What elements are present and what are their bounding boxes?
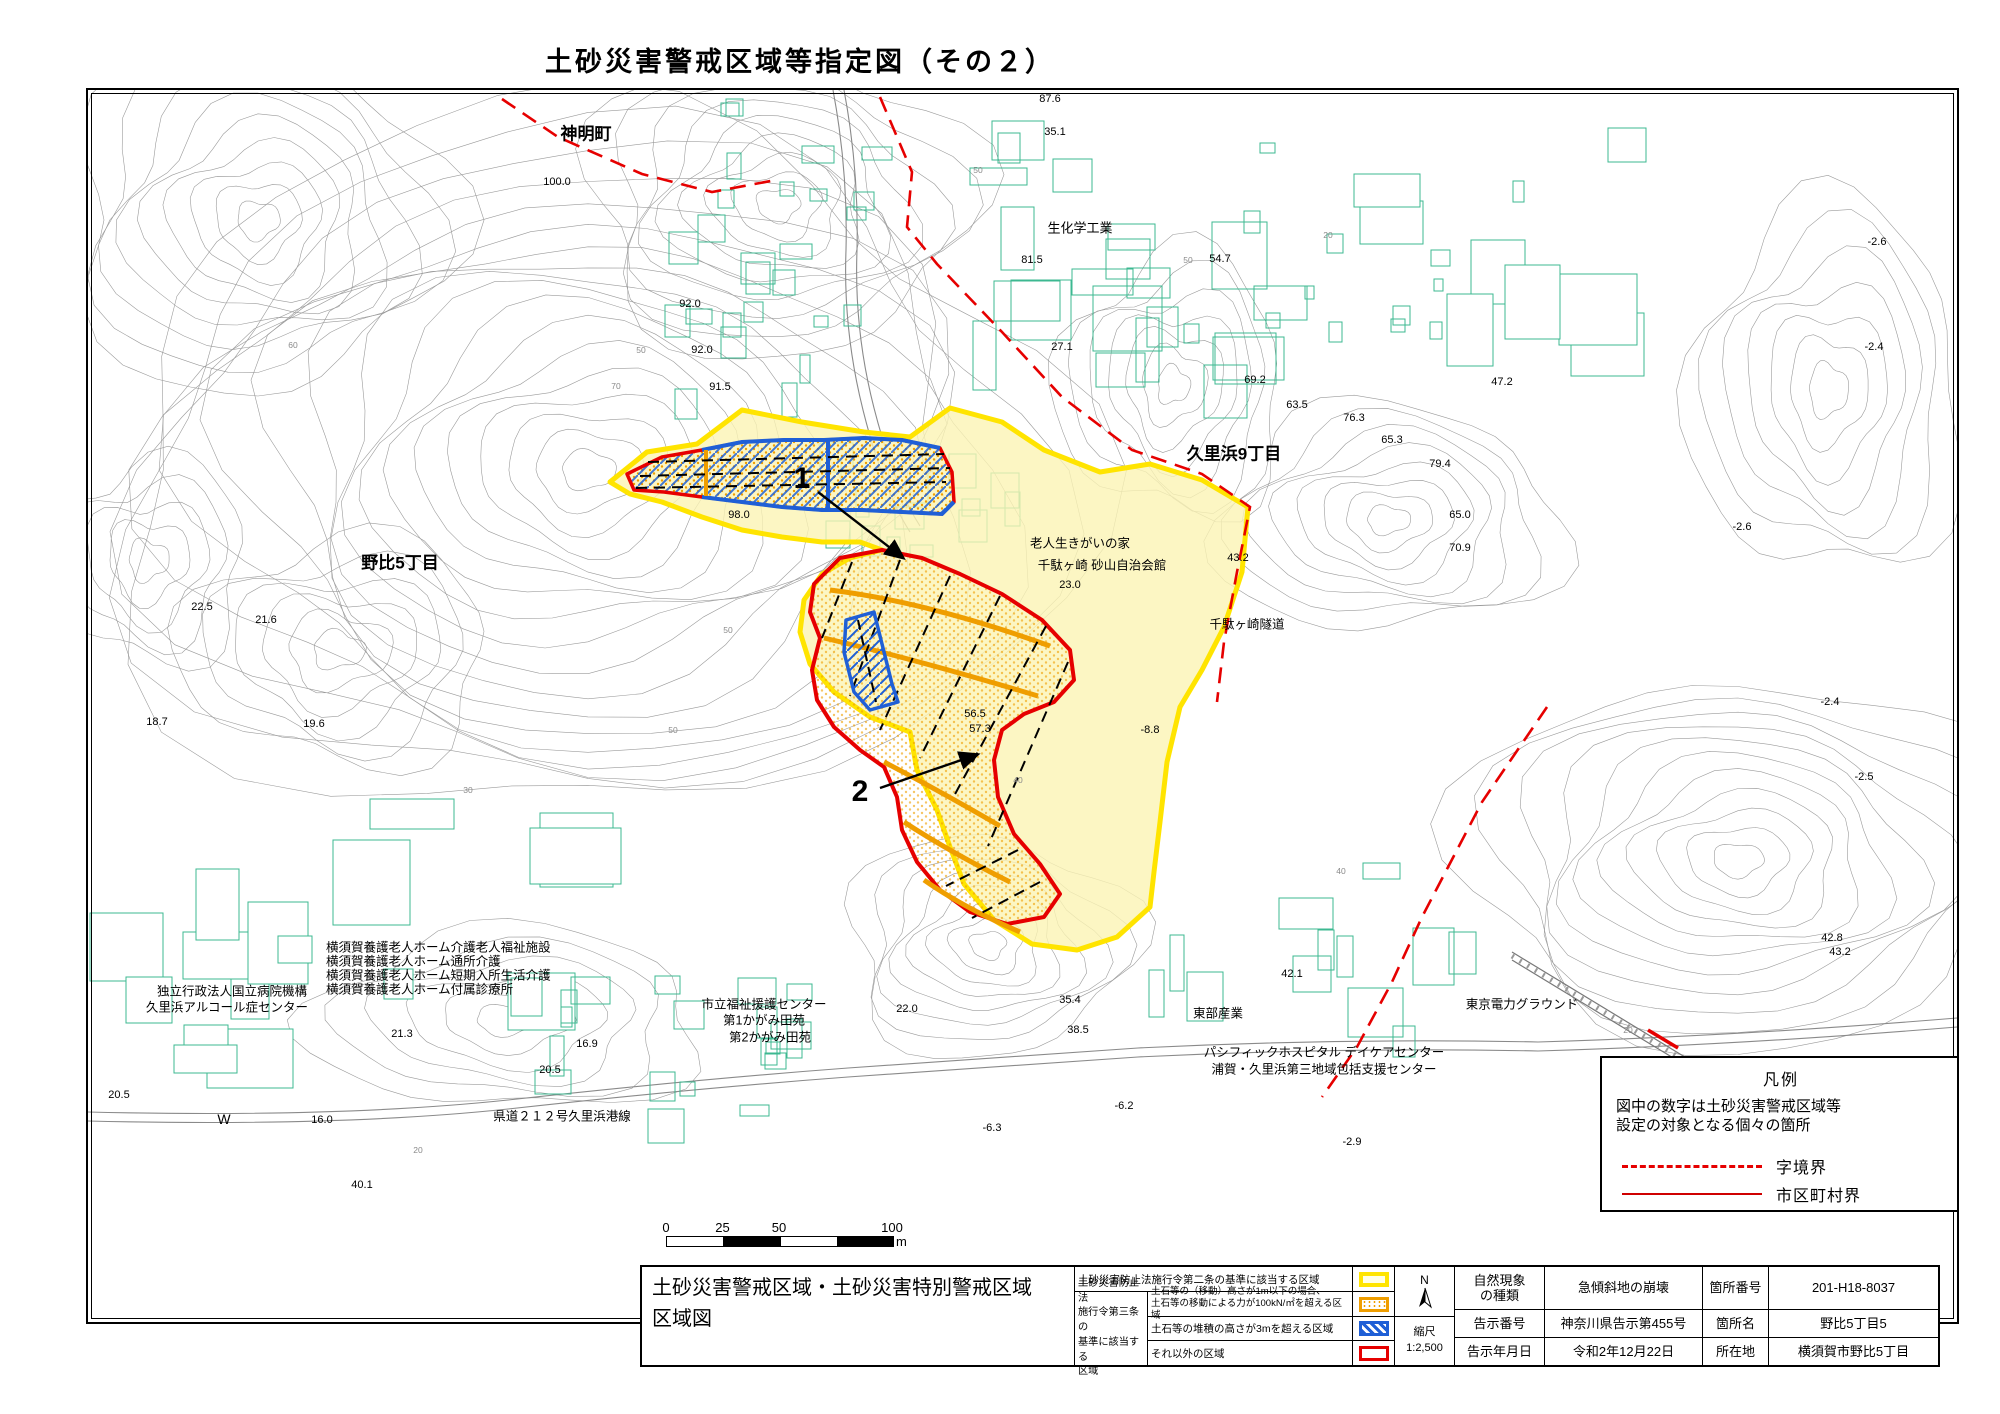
legend-item-municipal-boundary: 市区町村界 [1622,1182,1861,1206]
spot-elevation: 47.2 [1491,376,1512,388]
spot-elevation: 19.6 [303,718,324,730]
legend-item-aza-boundary: 字境界 [1622,1154,1827,1178]
area-label: W [217,1111,230,1127]
info-label: 所在地 [1703,1338,1769,1365]
info-value: 令和2年12月22日 [1545,1338,1703,1365]
contour-label: 20 [1623,1025,1632,1035]
spot-elevation: 27.1 [1051,341,1072,353]
map-legend: 凡例 図中の数字は土砂災害警戒区域等 設定の対象となる個々の箇所 字境界 市区町… [1600,1056,1959,1212]
info-label: 自然現象の種類 [1455,1267,1545,1310]
notice-info-table: 自然現象の種類急傾斜地の崩壊箇所番号201-H18-8037告示番号神奈川県告示… [1455,1267,1938,1365]
spot-elevation: 35.1 [1044,126,1065,138]
scale-tick: 0 [662,1220,669,1235]
area-label: 県道２１２号久里浜港線 [493,1106,631,1125]
scale-strip [666,1236,894,1247]
contour-label: 50 [636,345,645,355]
area-label: 第2かがみ田苑 [729,1027,811,1046]
dashed-red-line-sample [1622,1165,1762,1168]
spot-elevation: 92.0 [679,298,700,310]
legend-group-label: 土砂災害防止法施行令第三条の基準に該当する区域 [1075,1292,1148,1365]
spot-elevation: -2.4 [1865,341,1884,353]
spot-elevation: 42.8 [1821,932,1842,944]
spot-elevation: 42.1 [1281,968,1302,980]
title-block: 土砂災害警戒区域・土砂災害特別警戒区域 区域図 土砂災害防止法施行令第二条の基準… [640,1265,1940,1367]
contour-label: 50 [973,165,982,175]
zone-legend-table: 土砂災害防止法施行令第二条の基準に該当する区域 土砂災害防止法施行令第三条の基準… [1075,1267,1395,1365]
page: 土砂災害警戒区域等指定図（その２） 神明町生化学工業久里 [0,0,2000,1414]
contour-label: 50 [1183,255,1192,265]
area-label: 生化学工業 [1047,218,1112,237]
spot-elevation: 70.9 [1449,542,1470,554]
spot-elevation: -2.9 [1343,1136,1362,1148]
contour-label: 60 [288,340,297,350]
spot-elevation: 23.0 [1059,579,1080,591]
spot-elevation: 21.3 [391,1028,412,1040]
area-label: 千駄ヶ崎隧道 [1209,614,1284,633]
legend-row2-swatch [1353,1292,1395,1317]
spot-elevation: 91.5 [709,381,730,393]
info-label: 告示番号 [1455,1310,1545,1338]
spot-elevation: -2.6 [1733,521,1752,533]
area-label: 神明町 [561,120,612,145]
info-value: 神奈川県告示第455号 [1545,1310,1703,1338]
spot-elevation: 87.6 [1039,93,1060,105]
north-arrow-icon [1417,1287,1433,1309]
info-value: 急傾斜地の崩壊 [1545,1267,1703,1310]
spot-elevation: -2.4 [1821,696,1840,708]
info-value: 野比5丁目5 [1769,1310,1938,1338]
spot-elevation: 22.0 [896,1003,917,1015]
spot-elevation: 20.5 [108,1089,129,1101]
area-label: 浦賀・久里浜第三地域包括支援センター [1211,1059,1436,1078]
spot-elevation: 16.9 [576,1038,597,1050]
legend-note: 図中の数字は土砂災害警戒区域等 設定の対象となる個々の箇所 [1616,1098,1959,1136]
spot-elevation: -8.8 [1141,724,1160,736]
spot-elevation: 43.2 [1829,946,1850,958]
spot-elevation: 35.4 [1059,994,1080,1006]
zone-callout-number: 1 [794,462,811,496]
contour-label: 40 [1336,866,1345,876]
spot-elevation: 79.4 [1429,458,1450,470]
info-value: 201-H18-8037 [1769,1267,1938,1310]
spot-elevation: 63.5 [1286,399,1307,411]
spot-elevation: 76.3 [1343,412,1364,424]
legend-row3-desc: 土石等の堆積の高さが3mを超える区域 [1148,1317,1353,1341]
spot-elevation: 92.0 [691,344,712,356]
spot-elevation: 16.0 [311,1114,332,1126]
scale-tick: 50 [772,1220,786,1235]
spot-elevation: 21.6 [255,614,276,626]
area-label: 東部産業 [1193,1003,1243,1022]
scale-unit: m [896,1234,907,1249]
contour-label: 70 [611,381,620,391]
contour-label: 20 [1323,230,1332,240]
scale-tick: 100 [881,1220,903,1235]
spot-elevation: 81.5 [1021,254,1042,266]
scale-ratio: 縮尺 1:2,500 [1395,1317,1454,1366]
spot-elevation: 40.1 [351,1179,372,1191]
scale-ticks: 02550100 [666,1220,892,1236]
north-scale-cell: N 縮尺 1:2,500 [1395,1267,1455,1365]
spot-elevation: -2.5 [1855,771,1874,783]
legend-row4-swatch [1353,1341,1395,1365]
scale-bar: 02550100 m [666,1220,928,1260]
area-label: 久里浜9丁目 [1187,440,1281,465]
area-label: 野比5丁目 [361,549,438,574]
scale-tick: 25 [715,1220,729,1235]
area-label: 老人生きがいの家 [1030,533,1130,552]
spot-elevation: 98.0 [728,509,749,521]
legend-row2-desc: 土石等の（移動）高さが1m以下の場合、土石等の移動による力が100kN/㎡を超え… [1148,1292,1353,1317]
legend-row3-swatch [1353,1317,1395,1341]
spot-elevation: -6.2 [1115,1100,1134,1112]
area-label: 久里浜アルコール症センター [146,997,308,1016]
area-label: 千駄ヶ崎 砂山自治会館 [1038,555,1166,574]
contour-label: 30 [463,785,472,795]
map-frame: 神明町生化学工業久里浜9丁目野比5丁目老人生きがいの家千駄ヶ崎 砂山自治会館千駄… [86,88,1959,1324]
page-title: 土砂災害警戒区域等指定図（その２） [545,40,1055,79]
legend-row4-desc: それ以外の区域 [1148,1341,1353,1365]
spot-elevation: -2.6 [1868,236,1887,248]
spot-elevation: 20.5 [539,1064,560,1076]
spot-elevation: 56.5 [964,708,985,720]
info-label: 箇所番号 [1703,1267,1769,1310]
info-label: 告示年月日 [1455,1338,1545,1365]
spot-elevation: 57.3 [969,723,990,735]
contour-label: 50 [668,725,677,735]
spot-elevation: 69.2 [1244,374,1265,386]
spot-elevation: 38.5 [1067,1024,1088,1036]
spot-elevation: 22.5 [191,601,212,613]
zone-callout-number: 2 [852,775,869,809]
spot-elevation: 54.7 [1209,253,1230,265]
info-value: 横須賀市野比5丁目 [1769,1338,1938,1365]
solid-red-line-sample [1622,1193,1762,1195]
area-label: 東京電力グラウンド [1466,994,1579,1013]
legend-row1-swatch [1353,1267,1395,1292]
contour-label: 40 [1013,775,1022,785]
north-arrow: N [1395,1267,1454,1317]
contour-label: 20 [413,1145,422,1155]
contour-label: 50 [723,625,732,635]
info-label: 箇所名 [1703,1310,1769,1338]
spot-elevation: 18.7 [146,716,167,728]
legend-title: 凡例 [1602,1066,1959,1090]
map-sheet-title: 土砂災害警戒区域・土砂災害特別警戒区域 区域図 [642,1267,1075,1365]
spot-elevation: 65.0 [1449,509,1470,521]
spot-elevation: 43.2 [1227,552,1248,564]
spot-elevation: -6.3 [983,1122,1002,1134]
spot-elevation: 65.3 [1381,434,1402,446]
area-label: 横須賀養護老人ホーム付属診療所 [326,979,513,998]
spot-elevation: 100.0 [543,176,571,188]
